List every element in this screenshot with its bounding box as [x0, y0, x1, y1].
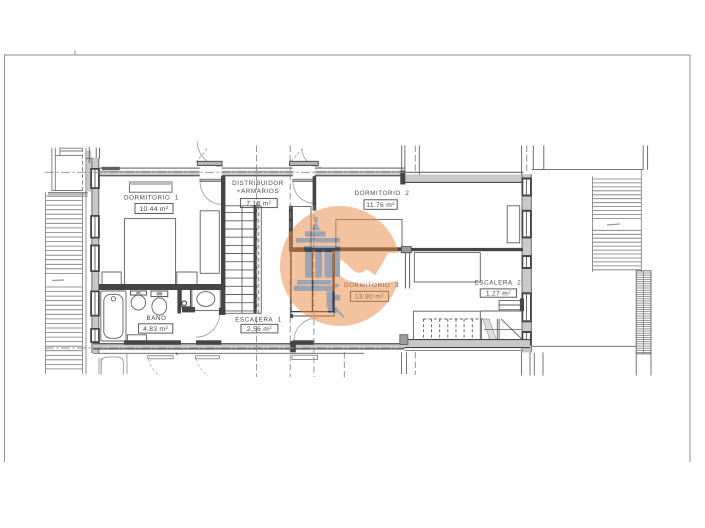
svg-text:BAÑO: BAÑO — [146, 314, 166, 322]
svg-text:+ARMARIOS: +ARMARIOS — [237, 188, 279, 195]
svg-text:4.83 m2: 4.83 m2 — [143, 325, 168, 333]
svg-text:11.76 m2: 11.76 m2 — [366, 201, 395, 209]
svg-text:DISTRIBUIDOR: DISTRIBUIDOR — [232, 180, 284, 187]
svg-text:DORMITORIO 2: DORMITORIO 2 — [355, 190, 410, 197]
svg-text:10.44 m2: 10.44 m2 — [139, 205, 168, 213]
svg-text:2.56 m2: 2.56 m2 — [247, 325, 272, 333]
svg-text:DORMITORIO 1: DORMITORIO 1 — [124, 194, 179, 201]
svg-text:ESCALERA 1: ESCALERA 1 — [235, 317, 282, 324]
svg-text:1.27 m2: 1.27 m2 — [486, 289, 511, 297]
svg-text:ESCALERA 2: ESCALERA 2 — [475, 279, 522, 286]
svg-text:7.18 m2: 7.18 m2 — [246, 200, 271, 208]
